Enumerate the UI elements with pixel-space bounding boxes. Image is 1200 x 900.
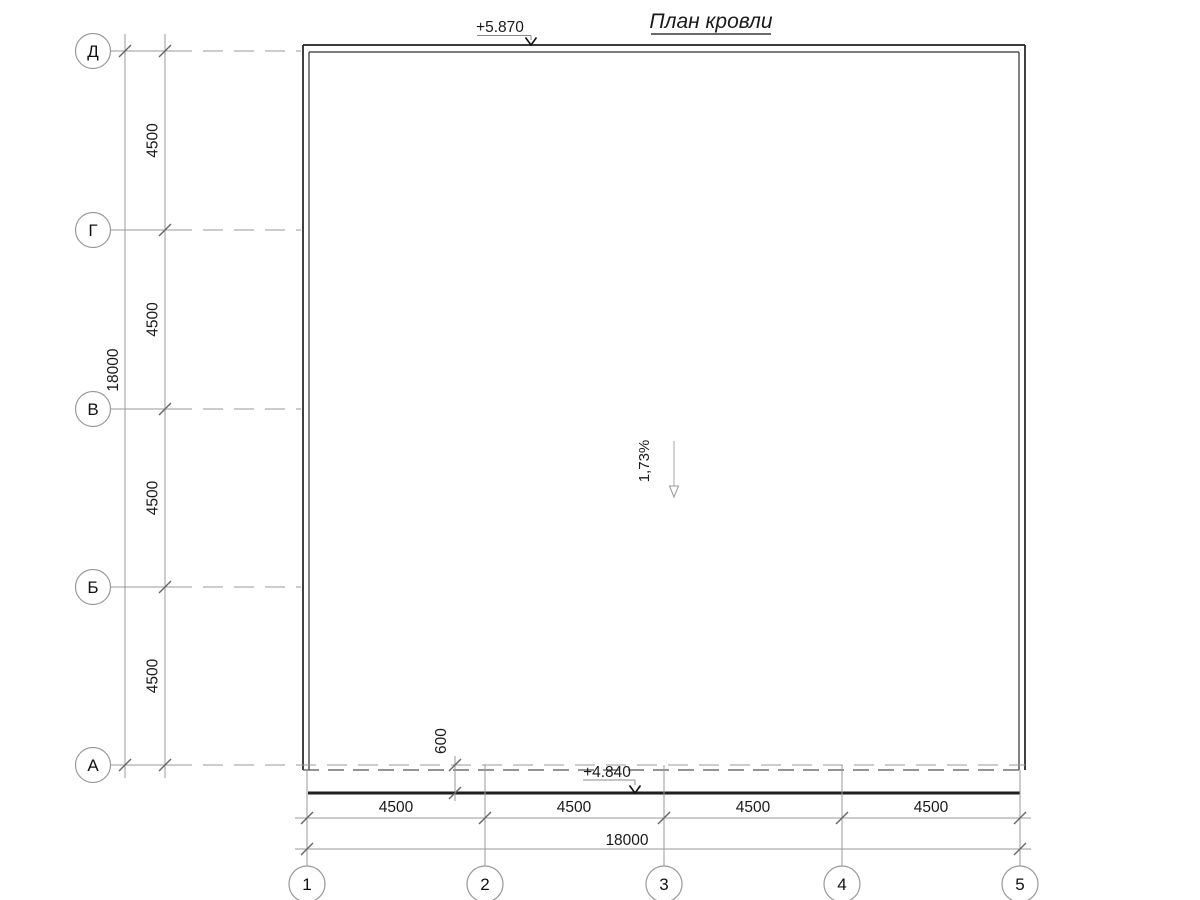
dim-label-bottom-total: 18000 — [605, 832, 648, 849]
dim-label-bottom-seg-1: 4500 — [379, 799, 414, 816]
axis-label-3: 3 — [659, 875, 668, 894]
elevation-bottom-value: +4.840 — [583, 764, 631, 781]
elevation-mark-top: +5.870 — [476, 19, 536, 45]
axis-label-1: 1 — [302, 875, 311, 894]
dim-label-left-seg-2: 4500 — [145, 302, 162, 337]
drawing-canvas: План кровли — [0, 0, 1200, 900]
dimension-lines — [125, 34, 1031, 849]
axis-bubble-3: 3 — [646, 866, 682, 900]
slope-annotation: 1,73% — [636, 440, 679, 497]
roof-outline — [303, 45, 1025, 793]
slope-arrow-head-icon — [670, 486, 679, 497]
dim-label-left-seg-4: 4500 — [145, 658, 162, 693]
dim-label-bottom-seg-3: 4500 — [736, 799, 771, 816]
axis-label-D: Д — [87, 42, 99, 61]
axis-label-5: 5 — [1015, 875, 1024, 894]
axis-bubble-B: Б — [76, 570, 111, 605]
grid-axis-lines-horizontal — [110, 51, 1025, 765]
axis-bubbles-left: Д Г В Б А — [76, 34, 111, 783]
roof-plan-drawing: План кровли — [0, 0, 1200, 900]
elevation-top-value: +5.870 — [476, 19, 524, 36]
dim-label-left-total: 18000 — [105, 348, 122, 391]
axis-bubble-5: 5 — [1002, 866, 1038, 900]
axis-bubbles-bottom: 1 2 3 4 5 — [289, 866, 1038, 900]
dim-label-bottom-seg-2: 4500 — [557, 799, 592, 816]
dimension-ticks — [119, 45, 1026, 855]
axis-bubble-V: В — [76, 392, 111, 427]
dim-label-left-seg-3: 4500 — [145, 480, 162, 515]
dim-label-left-seg-1: 4500 — [145, 123, 162, 158]
dim-label-bottom-seg-4: 4500 — [914, 799, 949, 816]
axis-label-2: 2 — [480, 875, 489, 894]
axis-bubble-1: 1 — [289, 866, 325, 900]
axis-bubble-A: А — [76, 748, 111, 783]
axis-label-B: Б — [87, 578, 98, 597]
axis-bubble-D: Д — [76, 34, 111, 69]
elevation-mark-bottom: +4.840 — [583, 764, 641, 793]
slope-value: 1,73% — [636, 440, 653, 483]
axis-label-V: В — [87, 400, 98, 419]
axis-bubble-G: Г — [76, 213, 111, 248]
dimension-labels-left: 4500 4500 4500 4500 18000 — [105, 123, 162, 693]
axis-label-A: А — [87, 756, 99, 775]
axis-label-4: 4 — [837, 875, 846, 894]
axis-bubble-2: 2 — [467, 866, 503, 900]
axis-label-G: Г — [88, 221, 97, 240]
axis-bubble-4: 4 — [824, 866, 860, 900]
drawing-title: План кровли — [649, 10, 773, 33]
dim-label-overhang: 600 — [433, 728, 450, 754]
